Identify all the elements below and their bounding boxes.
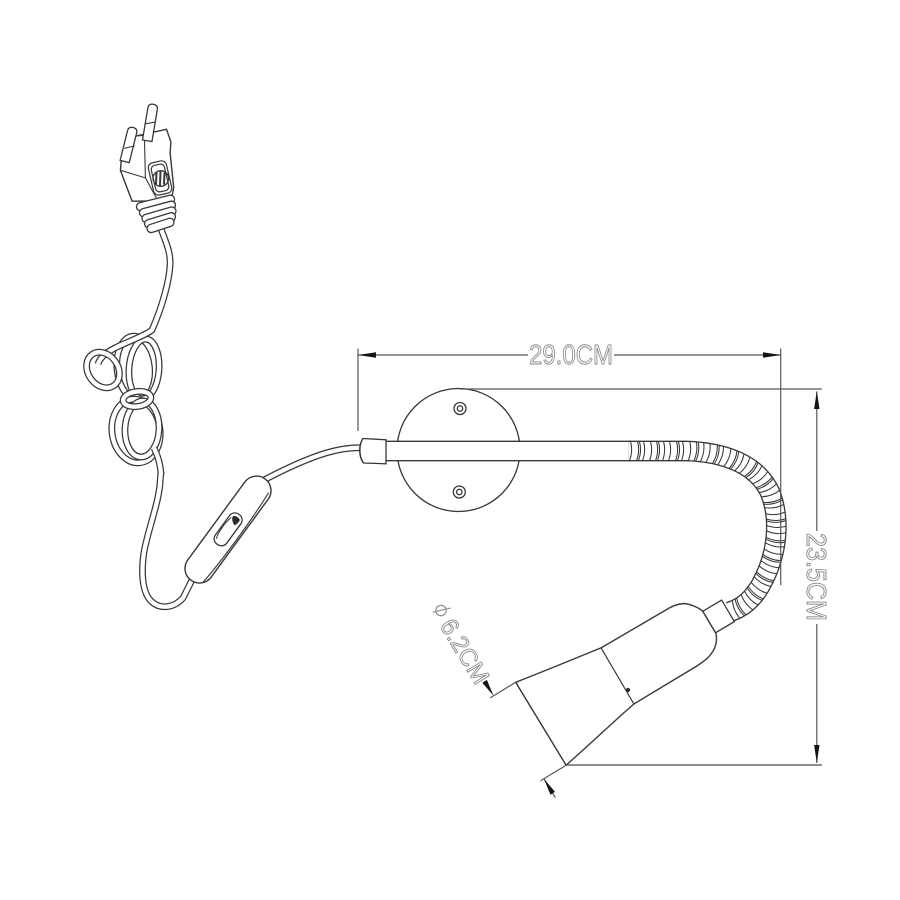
svg-text:23.5CM: 23.5CM — [801, 533, 832, 621]
svg-text:6.2CM: 6.2CM — [434, 614, 494, 689]
svg-text:29.0CM: 29.0CM — [529, 339, 613, 370]
